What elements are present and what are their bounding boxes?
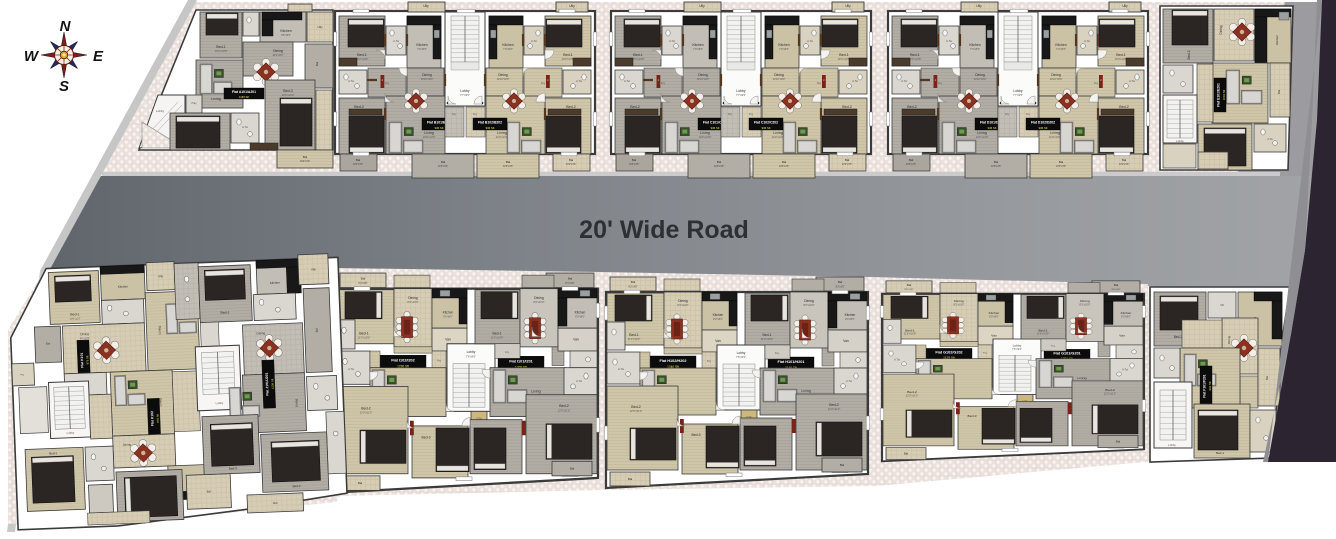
svg-text:Foy: Foy xyxy=(661,81,666,85)
svg-text:8'3"x3'6": 8'3"x3'6" xyxy=(565,282,574,285)
svg-text:9'0"x8'0": 9'0"x8'0" xyxy=(1121,316,1131,319)
svg-text:7'0"x8'6": 7'0"x8'6" xyxy=(779,47,789,51)
svg-text:Utly: Utly xyxy=(423,4,429,8)
svg-text:8'3"x3'6": 8'3"x3'6" xyxy=(1111,289,1120,291)
svg-text:Flat A101/A201: Flat A101/A201 xyxy=(232,90,256,94)
svg-text:Lobby: Lobby xyxy=(156,109,165,113)
svg-text:Kitchen: Kitchen xyxy=(845,313,856,317)
svg-text:Bed-2: Bed-2 xyxy=(566,105,576,109)
svg-text:Bal: Bal xyxy=(569,158,574,162)
svg-text:Bed-3: Bed-3 xyxy=(691,433,700,437)
svg-text:Kitchen: Kitchen xyxy=(692,43,703,47)
svg-text:11'0"x10'0": 11'0"x10'0" xyxy=(761,337,774,341)
svg-text:936 Sft: 936 Sft xyxy=(762,126,771,130)
svg-text:Dining: Dining xyxy=(123,442,132,446)
svg-text:Bed-2: Bed-2 xyxy=(630,105,640,109)
svg-text:10'0"x12'0": 10'0"x12'0" xyxy=(282,93,295,97)
svg-text:Dining: Dining xyxy=(534,296,544,300)
svg-text:Dining: Dining xyxy=(1080,299,1090,303)
svg-text:9'0"x8'0": 9'0"x8'0" xyxy=(443,315,453,319)
svg-text:UB: UB xyxy=(1220,303,1224,307)
svg-text:Bal: Bal xyxy=(994,160,999,164)
svg-text:Lobby: Lobby xyxy=(67,431,75,435)
svg-text:Bal: Bal xyxy=(904,452,909,456)
svg-text:Van: Van xyxy=(1119,334,1125,338)
svg-text:936 Sft: 936 Sft xyxy=(1039,126,1048,130)
svg-text:10'0"x3'6": 10'0"x3'6" xyxy=(779,165,790,168)
svg-text:A.Toi: A.Toi xyxy=(901,79,907,83)
svg-text:Bal: Bal xyxy=(441,160,446,164)
svg-text:Kitchen: Kitchen xyxy=(1121,311,1132,315)
svg-text:10'0"x3'6": 10'0"x3'6" xyxy=(906,163,917,166)
svg-text:Bed-2: Bed-2 xyxy=(361,406,371,410)
svg-text:Foy: Foy xyxy=(938,81,943,85)
svg-text:9'6"x8'6": 9'6"x8'6" xyxy=(281,33,291,37)
svg-text:Flat K101: Flat K101 xyxy=(80,353,85,368)
svg-text:W: W xyxy=(24,48,40,65)
svg-text:A.Toi: A.Toi xyxy=(348,79,354,83)
svg-text:Bal: Bal xyxy=(628,477,633,481)
svg-text:Bal: Bal xyxy=(303,155,308,159)
svg-text:Bed-2: Bed-2 xyxy=(354,105,364,109)
svg-text:Lobby: Lobby xyxy=(1013,89,1023,93)
svg-text:Bal: Bal xyxy=(782,160,787,164)
svg-text:Kitchen: Kitchen xyxy=(443,311,454,315)
svg-text:Bed-1: Bed-1 xyxy=(70,312,79,316)
svg-text:Living: Living xyxy=(157,326,161,335)
svg-text:Dining: Dining xyxy=(408,296,418,300)
svg-text:12'0"x11'0": 12'0"x11'0" xyxy=(828,407,841,411)
svg-text:A.Toi: A.Toi xyxy=(531,39,537,43)
svg-text:11'0"x10'0": 11'0"x10'0" xyxy=(491,336,504,340)
svg-text:Van: Van xyxy=(445,338,451,342)
svg-text:8'3"x10'0": 8'3"x10'0" xyxy=(407,300,418,304)
svg-text:Bal: Bal xyxy=(1116,440,1121,444)
svg-text:A.Toi: A.Toi xyxy=(242,125,248,129)
svg-text:Living: Living xyxy=(1050,131,1059,135)
svg-text:Bal: Bal xyxy=(1114,283,1119,287)
svg-text:10'0"x8'0": 10'0"x8'0" xyxy=(272,53,283,57)
svg-text:13'9"x13'9": 13'9"x13'9" xyxy=(699,135,712,139)
svg-text:Bal: Bal xyxy=(632,158,637,162)
svg-text:Foy: Foy xyxy=(1094,81,1099,85)
svg-text:Kitchen: Kitchen xyxy=(416,43,427,47)
svg-text:Kitchen: Kitchen xyxy=(1275,35,1279,45)
svg-text:10'0"x10'8": 10'0"x10'8" xyxy=(838,57,851,61)
svg-text:Bed-2: Bed-2 xyxy=(631,405,641,409)
svg-text:12'0"x11'0": 12'0"x11'0" xyxy=(630,409,643,413)
svg-text:11'0"x10'0": 11'0"x10'0" xyxy=(1037,333,1050,336)
svg-text:Dining: Dining xyxy=(975,73,985,77)
svg-text:Bal: Bal xyxy=(1277,90,1281,94)
svg-text:7'6"x9'6": 7'6"x9'6" xyxy=(736,355,746,359)
svg-text:Bed-2: Bed-2 xyxy=(1174,335,1183,339)
svg-text:10'0"x10'8": 10'0"x10'8" xyxy=(632,57,645,61)
svg-text:8'3"x10'0": 8'3"x10'0" xyxy=(533,300,544,304)
svg-text:Bed-3: Bed-3 xyxy=(967,414,976,418)
svg-text:12'0"x11'0": 12'0"x11'0" xyxy=(1104,393,1117,396)
svg-text:10'0"x3'6": 10'0"x3'6" xyxy=(629,163,640,166)
svg-text:Flat H102/H202: Flat H102/H202 xyxy=(659,359,686,363)
svg-text:Utly: Utly xyxy=(699,4,705,8)
svg-text:936 Sft: 936 Sft xyxy=(988,126,997,130)
svg-text:Bed-1: Bed-1 xyxy=(357,53,367,57)
svg-text:14'0"x13'9": 14'0"x13'9" xyxy=(772,135,785,139)
svg-text:Bed-3: Bed-3 xyxy=(229,466,237,470)
svg-text:Living: Living xyxy=(977,131,986,135)
svg-text:1239 Sft: 1239 Sft xyxy=(270,378,274,389)
svg-text:936 Sft: 936 Sft xyxy=(711,126,720,130)
svg-text:Bal: Bal xyxy=(1122,158,1127,162)
svg-text:Dining: Dining xyxy=(678,299,688,303)
svg-text:8'3"x10'0": 8'3"x10'0" xyxy=(677,303,688,307)
svg-text:Flat I102/I202: Flat I102/I202 xyxy=(391,357,415,362)
svg-text:8'3"x10'0": 8'3"x10'0" xyxy=(953,304,964,307)
svg-text:Bed-1: Bed-1 xyxy=(492,331,501,335)
svg-text:Utly: Utly xyxy=(317,25,323,29)
svg-text:Pray: Pray xyxy=(192,102,198,105)
svg-text:Lobby: Lobby xyxy=(1168,443,1176,447)
svg-text:936 Sft: 936 Sft xyxy=(435,126,444,130)
svg-text:Bed-1: Bed-1 xyxy=(1116,53,1126,57)
svg-text:Flat H101/H201: Flat H101/H201 xyxy=(777,360,804,364)
svg-text:A.Toi: A.Toi xyxy=(669,39,675,43)
svg-text:Bed-1: Bed-1 xyxy=(216,45,226,49)
svg-text:Bal: Bal xyxy=(570,467,575,471)
svg-text:Utly: Utly xyxy=(845,4,851,8)
svg-text:Bal: Bal xyxy=(1059,160,1064,164)
svg-text:Bal: Bal xyxy=(845,158,850,162)
svg-text:Bed-1: Bed-1 xyxy=(762,333,771,337)
svg-text:Dining: Dining xyxy=(422,73,432,77)
svg-text:Bal: Bal xyxy=(840,463,845,467)
svg-text:Flat E101/E201: Flat E101/E201 xyxy=(1216,83,1220,107)
svg-text:1003 Sft: 1003 Sft xyxy=(1222,90,1226,101)
svg-text:Bed-2: Bed-2 xyxy=(907,390,917,394)
svg-text:A.Toi: A.Toi xyxy=(894,359,900,362)
svg-text:8'3"x10'0": 8'3"x10'0" xyxy=(1079,304,1090,307)
svg-text:A.Toi: A.Toi xyxy=(1122,369,1128,372)
svg-text:Bal: Bal xyxy=(315,328,319,333)
svg-text:A.Toi: A.Toi xyxy=(846,379,852,383)
svg-text:Flat K102: Flat K102 xyxy=(150,411,155,426)
svg-text:878 Sft: 878 Sft xyxy=(156,414,160,423)
svg-text:Bed-1: Bed-1 xyxy=(1038,329,1047,333)
svg-text:Bal: Bal xyxy=(838,280,843,284)
svg-text:Bed-1: Bed-1 xyxy=(359,331,369,335)
svg-text:Van: Van xyxy=(843,339,849,343)
svg-text:9'0"x8'0": 9'0"x8'0" xyxy=(713,317,723,321)
svg-text:Bed-1: Bed-1 xyxy=(839,53,849,57)
svg-text:Living: Living xyxy=(497,131,506,135)
svg-text:Kitchen: Kitchen xyxy=(575,311,586,315)
svg-text:8'3"x3'6": 8'3"x3'6" xyxy=(835,286,844,289)
svg-text:Bal: Bal xyxy=(315,62,319,67)
svg-text:Living: Living xyxy=(294,399,298,408)
svg-text:Bed-3: Bed-3 xyxy=(283,89,293,93)
svg-text:Bed-1: Bed-1 xyxy=(910,53,920,57)
svg-text:12'0"x11'0": 12'0"x11'0" xyxy=(558,408,571,412)
svg-text:Flat B102/B202: Flat B102/B202 xyxy=(478,120,502,124)
svg-text:Living: Living xyxy=(424,131,433,135)
svg-text:Bal: Bal xyxy=(207,489,212,493)
svg-text:Utly: Utly xyxy=(158,274,164,278)
svg-text:Utly: Utly xyxy=(311,267,317,271)
svg-text:975 Sft: 975 Sft xyxy=(85,355,89,364)
svg-text:10'0"x10'8": 10'0"x10'8" xyxy=(215,49,228,53)
svg-text:A.Toi: A.Toi xyxy=(807,39,813,43)
svg-text:13'9"x13'9": 13'9"x13'9" xyxy=(976,135,989,139)
svg-text:Kitchen: Kitchen xyxy=(118,284,128,288)
svg-text:10'10"x8'0": 10'10"x8'0" xyxy=(1050,77,1063,81)
svg-text:Kitchen: Kitchen xyxy=(1055,43,1066,47)
svg-text:Kitchen: Kitchen xyxy=(989,311,1000,315)
svg-text:Dining: Dining xyxy=(804,299,814,303)
svg-text:Bal: Bal xyxy=(356,158,361,162)
svg-text:Bed-3: Bed-3 xyxy=(421,435,430,439)
svg-text:Bal: Bal xyxy=(717,160,722,164)
svg-text:A.Toi: A.Toi xyxy=(1129,79,1135,83)
svg-text:Bed-2: Bed-2 xyxy=(842,105,852,109)
svg-text:Bal: Bal xyxy=(631,280,636,284)
svg-text:Bed-1: Bed-1 xyxy=(633,53,643,57)
svg-text:10'10"x8'0": 10'10"x8'0" xyxy=(421,77,434,81)
svg-text:Living: Living xyxy=(1077,376,1087,380)
svg-text:A.Toi: A.Toi xyxy=(852,79,858,83)
svg-text:12'0"x11'0": 12'0"x11'0" xyxy=(360,410,373,414)
svg-text:Flat C102/C202: Flat C102/C202 xyxy=(754,120,778,124)
svg-text:Kitchen: Kitchen xyxy=(280,29,291,33)
svg-text:10'0"x3'6": 10'0"x3'6" xyxy=(842,163,853,166)
svg-text:Living: Living xyxy=(531,390,540,394)
svg-text:10'0"x3'6": 10'0"x3'6" xyxy=(991,165,1002,168)
svg-text:Dining: Dining xyxy=(80,332,89,336)
svg-text:7'6"x9'6": 7'6"x9'6" xyxy=(1012,348,1022,351)
svg-text:936 Sft: 936 Sft xyxy=(486,126,495,130)
svg-text:Dining: Dining xyxy=(1219,25,1223,34)
svg-text:Bal: Bal xyxy=(273,501,278,505)
svg-text:A.Toi: A.Toi xyxy=(1267,138,1273,141)
svg-text:Lobby: Lobby xyxy=(216,401,224,405)
svg-text:Bed-2: Bed-2 xyxy=(829,403,839,407)
svg-text:A.Toi: A.Toi xyxy=(624,79,630,83)
svg-text:9'0"x8'0": 9'0"x8'0" xyxy=(575,315,585,319)
svg-text:11'0"x10'0": 11'0"x10'0" xyxy=(358,336,371,340)
svg-text:10'0"x3'6": 10'0"x3'6" xyxy=(1119,163,1130,166)
svg-text:Bed-2: Bed-2 xyxy=(907,105,917,109)
svg-text:Dining: Dining xyxy=(774,73,784,77)
svg-text:Lobby: Lobby xyxy=(736,89,746,93)
svg-text:10'0"x10'8": 10'0"x10'8" xyxy=(909,57,922,61)
svg-text:7'7"x9'5": 7'7"x9'5" xyxy=(1013,93,1023,97)
svg-text:9'0"x8'0": 9'0"x8'0" xyxy=(989,316,999,319)
svg-text:10'10"x8'0": 10'10"x8'0" xyxy=(773,77,786,81)
svg-text:10'0"x3'6": 10'0"x3'6" xyxy=(714,165,725,168)
svg-text:Lobby: Lobby xyxy=(467,350,476,354)
svg-text:Kitchen: Kitchen xyxy=(270,281,280,285)
svg-text:Utly: Utly xyxy=(976,4,982,8)
svg-text:10'0'x11'0': 10'0'x11'0' xyxy=(70,317,81,320)
svg-text:Living: Living xyxy=(801,389,810,393)
svg-text:Bed-2: Bed-2 xyxy=(559,404,569,408)
svg-text:10'10"x8'0": 10'10"x8'0" xyxy=(974,77,987,81)
svg-text:Flat F101/F201: Flat F101/F201 xyxy=(1202,374,1206,397)
svg-text:8'3"x10'0": 8'3"x10'0" xyxy=(803,303,814,307)
svg-text:N: N xyxy=(60,18,72,35)
svg-text:Foy: Foy xyxy=(385,81,390,85)
svg-text:Bed-1: Bed-1 xyxy=(220,311,229,315)
svg-text:10'0"x3'6": 10'0"x3'6" xyxy=(566,163,577,166)
svg-text:Bed-1: Bed-1 xyxy=(49,451,57,455)
svg-text:Lobby: Lobby xyxy=(460,89,470,93)
svg-text:Bal: Bal xyxy=(907,283,912,287)
svg-text:7'0"x8'6": 7'0"x8'6" xyxy=(417,47,427,51)
svg-text:Foy: Foy xyxy=(541,81,546,85)
svg-text:Foy: Foy xyxy=(817,81,822,85)
svg-text:Bed-2: Bed-2 xyxy=(1105,388,1115,392)
svg-text:Dining: Dining xyxy=(954,299,964,303)
svg-text:Flat I101/I201: Flat I101/I201 xyxy=(509,358,533,363)
svg-text:7'0"x8'6": 7'0"x8'6" xyxy=(693,47,703,51)
svg-text:Bal: Bal xyxy=(568,276,573,280)
svg-text:Van: Van xyxy=(573,338,579,342)
svg-text:A.Toi: A.Toi xyxy=(348,367,354,371)
svg-text:10'10"x8'0": 10'10"x8'0" xyxy=(497,77,510,81)
svg-text:10'0"x3'6": 10'0"x3'6" xyxy=(1056,165,1067,168)
svg-text:Flat G102/G202: Flat G102/G202 xyxy=(935,351,962,355)
svg-text:Utly: Utly xyxy=(1122,4,1128,8)
svg-text:12'0"x11'0": 12'0"x11'0" xyxy=(906,394,919,397)
svg-text:Kitchen: Kitchen xyxy=(502,43,513,47)
svg-text:Lobby: Lobby xyxy=(1013,344,1022,348)
svg-text:Dining: Dining xyxy=(256,331,265,335)
svg-text:8'3"x3'6": 8'3"x3'6" xyxy=(628,286,637,289)
svg-text:8'3"x3'6": 8'3"x3'6" xyxy=(358,282,367,285)
svg-text:Van: Van xyxy=(991,334,997,338)
svg-text:Bed-1: Bed-1 xyxy=(1216,451,1224,455)
svg-text:A.Toi: A.Toi xyxy=(576,379,582,383)
svg-text:A.Toi: A.Toi xyxy=(946,39,952,43)
svg-text:Kitchen: Kitchen xyxy=(969,43,980,47)
svg-text:1165 Sft: 1165 Sft xyxy=(239,95,249,99)
svg-text:14'0"x13'9": 14'0"x13'9" xyxy=(496,135,509,139)
svg-text:Utly: Utly xyxy=(569,4,575,8)
svg-text:7'7"x9'5": 7'7"x9'5" xyxy=(460,93,470,97)
svg-text:Lobby: Lobby xyxy=(737,351,746,355)
svg-text:7'0"x8'6": 7'0"x8'6" xyxy=(1056,47,1066,51)
svg-text:Bed-1: Bed-1 xyxy=(563,53,573,57)
svg-text:Bal: Bal xyxy=(358,481,363,485)
svg-text:10'0"x10'8": 10'0"x10'8" xyxy=(356,57,369,61)
svg-text:S: S xyxy=(59,78,69,95)
svg-text:Dining: Dining xyxy=(1051,73,1061,77)
svg-text:962 Sft: 962 Sft xyxy=(1208,381,1212,390)
svg-text:Living: Living xyxy=(211,97,220,101)
svg-text:Living: Living xyxy=(700,131,709,135)
svg-text:Bal: Bal xyxy=(506,160,511,164)
svg-text:14'0"x13'9": 14'0"x13'9" xyxy=(1049,135,1062,139)
svg-text:7'6"x9'6": 7'6"x9'6" xyxy=(466,354,476,358)
svg-text:Kitchen: Kitchen xyxy=(778,43,789,47)
svg-text:10'0"x3'6": 10'0"x3'6" xyxy=(353,163,364,166)
svg-text:Kitchen: Kitchen xyxy=(713,313,724,317)
svg-text:7'0"x8'6": 7'0"x8'6" xyxy=(970,47,980,51)
svg-text:Bal: Bal xyxy=(361,276,366,280)
svg-text:Bed-2: Bed-2 xyxy=(194,144,203,148)
svg-text:Lobby: Lobby xyxy=(1176,139,1184,143)
svg-text:10'0"x3'6": 10'0"x3'6" xyxy=(503,165,514,168)
svg-text:Van: Van xyxy=(715,339,721,343)
svg-text:Bal: Bal xyxy=(1265,376,1269,380)
svg-text:Bal: Bal xyxy=(909,158,914,162)
svg-text:A.Toi: A.Toi xyxy=(618,367,624,371)
svg-text:A.Toi: A.Toi xyxy=(1084,39,1090,43)
svg-text:11'0"x10'0": 11'0"x10'0" xyxy=(904,333,917,336)
svg-text:7'0"x8'6": 7'0"x8'6" xyxy=(503,47,513,51)
svg-text:Bed-1: Bed-1 xyxy=(1243,146,1247,155)
svg-text:10'0"x10'8": 10'0"x10'8" xyxy=(562,57,575,61)
svg-text:10'0"x3'6": 10'0"x3'6" xyxy=(438,165,449,168)
svg-text:Bed-2: Bed-2 xyxy=(1119,105,1129,109)
svg-text:Dining: Dining xyxy=(1227,336,1231,344)
svg-text:A.Toi: A.Toi xyxy=(576,79,582,83)
svg-text:Flat D102/D202: Flat D102/D202 xyxy=(1031,120,1055,124)
svg-text:10'0"x10'8": 10'0"x10'8" xyxy=(1115,57,1128,61)
svg-text:Dining: Dining xyxy=(498,73,508,77)
svg-text:11'0"x10'0": 11'0"x10'0" xyxy=(628,337,641,341)
svg-text:Bed-1: Bed-1 xyxy=(905,329,915,333)
svg-text:8'3"x3'6": 8'3"x3'6" xyxy=(904,289,913,291)
svg-text:Dining: Dining xyxy=(698,73,708,77)
svg-text:9'0"x8'0": 9'0"x8'0" xyxy=(845,317,855,321)
svg-text:13'9"x13'9": 13'9"x13'9" xyxy=(423,135,436,139)
svg-text:Bed-1: Bed-1 xyxy=(629,333,639,337)
svg-text:Bed-2: Bed-2 xyxy=(293,484,301,488)
svg-text:7'7"x9'5": 7'7"x9'5" xyxy=(736,93,746,97)
svg-text:Flat G101/G201: Flat G101/G201 xyxy=(1053,352,1080,356)
svg-text:E: E xyxy=(93,48,104,65)
svg-text:Bal: Bal xyxy=(46,341,51,345)
svg-text:A.Toi: A.Toi xyxy=(393,39,399,43)
svg-text:Living: Living xyxy=(773,131,782,135)
svg-text:Bed-2: Bed-2 xyxy=(1187,50,1191,59)
svg-text:10'10"x8'0": 10'10"x8'0" xyxy=(697,77,710,81)
svg-text:20' Wide Road: 20' Wide Road xyxy=(579,216,749,244)
svg-text:16'9"x3'6": 16'9"x3'6" xyxy=(300,160,311,163)
svg-text:Dining: Dining xyxy=(273,49,283,53)
